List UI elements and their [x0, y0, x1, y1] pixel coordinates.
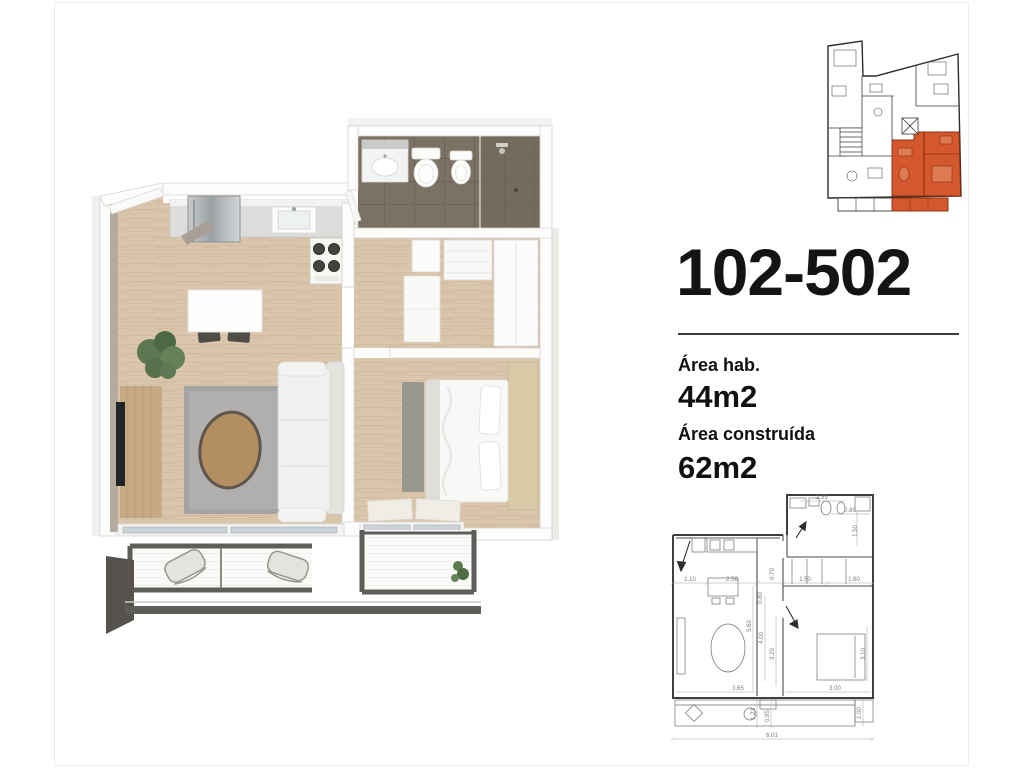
tech-furniture: [675, 497, 873, 726]
building-key-plan: [816, 36, 966, 216]
dim-row-2: 2.56: [726, 577, 738, 583]
dim-row-3: 1.50: [799, 577, 811, 583]
pillow: [479, 386, 501, 435]
shower-floor: [480, 136, 540, 228]
area-hab-label: Área hab.: [678, 355, 760, 376]
balcony-wedge: [106, 556, 134, 634]
bed-bench: [402, 382, 424, 492]
dim-total-width: 6.01: [766, 733, 778, 739]
dim-balcony-right: 1.00: [857, 707, 863, 719]
bathroom-vanity: [362, 140, 408, 182]
area-construida-label: Área construída: [678, 424, 815, 445]
dim-living-depth: 5.60: [747, 620, 753, 632]
area-hab-value: 44m2: [678, 379, 757, 415]
dim-row-1: 1.10: [684, 577, 696, 583]
technical-floor-plan: 2.89 0.80 1.50 1.10 2.56 1.50 1.60 0.80 …: [650, 486, 902, 752]
divider-line: [678, 333, 959, 335]
unit-number: 102-502: [676, 239, 966, 305]
dim-row-4: 1.60: [848, 577, 860, 583]
key-plan-balcony: [838, 198, 948, 211]
dim-corridor-c: 4.00: [759, 632, 765, 644]
toilet-icon: [412, 148, 440, 187]
bed: [402, 362, 538, 510]
wall-shadow-top: [348, 118, 552, 126]
sliding-door-living: [118, 524, 344, 536]
tv-wall: [116, 386, 162, 518]
area-construida-value: 62m2: [678, 450, 757, 486]
dim-balcony-b: 0.95: [765, 710, 771, 722]
balcony-rail-outer: [125, 606, 481, 614]
wall-shadow-left: [92, 196, 100, 536]
tv-icon: [116, 402, 125, 486]
dim-corridor-a: 0.80: [758, 592, 764, 604]
dim-bedroom-width: 3.00: [829, 686, 841, 692]
dim-living-width: 3.65: [732, 686, 744, 692]
highlighted-unit: [892, 132, 961, 196]
brochure-page: 102-502 Área hab. 44m2 Área construída 6…: [0, 0, 1024, 768]
bedside-mat: [368, 499, 413, 521]
elevator: [902, 118, 918, 134]
dim-top-right: 0.80: [844, 508, 856, 514]
balcony-living: [130, 546, 312, 590]
stove: [310, 238, 342, 284]
bidet-icon: [450, 151, 472, 184]
dimension-labels: 2.89 0.80 1.50 1.10 2.56 1.50 1.60 0.80 …: [684, 495, 867, 739]
tech-interior-walls: [676, 535, 873, 696]
wall-shadow-right: [552, 228, 559, 540]
sofa: [278, 362, 344, 522]
dim-corridor-d: 3.20: [770, 648, 776, 660]
dim-corridor-b: 0.70: [770, 568, 776, 580]
dim-balcony-a: 1.23: [751, 708, 757, 720]
bedside-mat: [416, 499, 461, 521]
rendered-floor-plan: [55, 90, 585, 650]
dim-bedroom-depth: 3.10: [861, 648, 867, 660]
dim-right-upper: 1.50: [853, 525, 859, 537]
dim-top: 2.89: [816, 495, 828, 501]
headboard: [508, 362, 538, 510]
balcony-bedroom: [362, 530, 474, 592]
stairs: [840, 128, 862, 156]
pillow: [479, 442, 501, 491]
faucet-icon: [292, 207, 296, 211]
tech-outer-walls: [673, 495, 873, 698]
